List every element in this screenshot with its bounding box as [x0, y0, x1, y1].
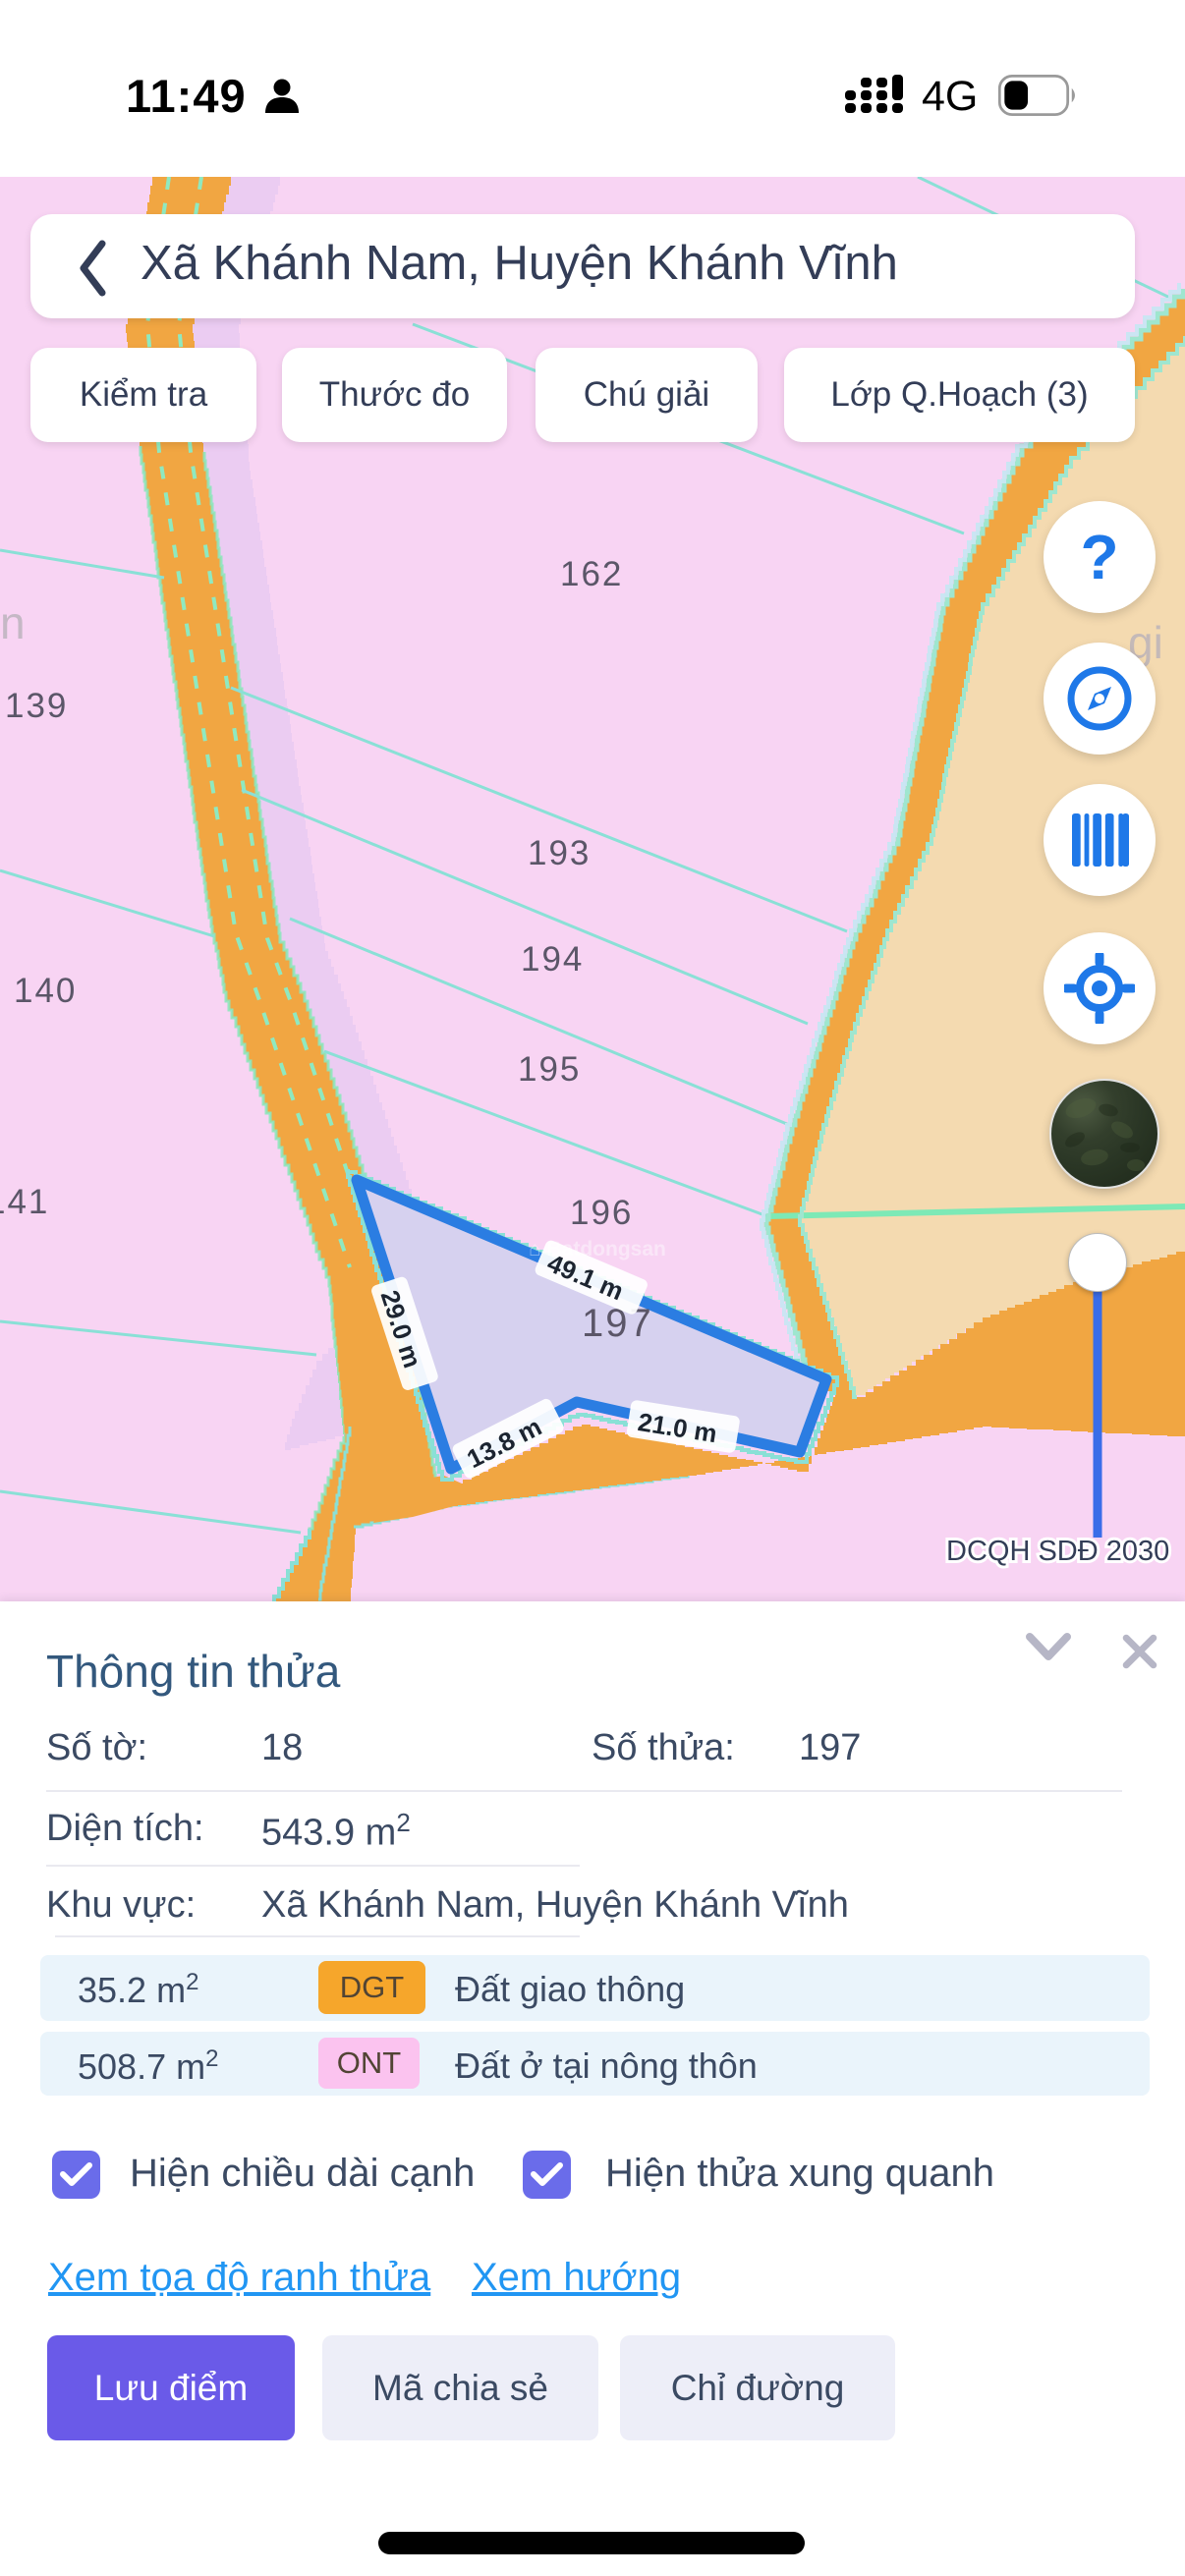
svg-text:162: 162 — [560, 555, 623, 593]
svg-text:193: 193 — [528, 834, 591, 872]
svg-text:141: 141 — [0, 1183, 49, 1221]
svg-text:194: 194 — [521, 940, 584, 979]
svg-text:139: 139 — [5, 687, 68, 725]
svg-text:140: 140 — [14, 972, 77, 1010]
svg-text:n: n — [0, 597, 26, 648]
svg-text:DCQH SDĐ 2030: DCQH SDĐ 2030 — [946, 1536, 1169, 1567]
svg-text:196: 196 — [570, 1194, 633, 1232]
svg-text:195: 195 — [518, 1050, 581, 1089]
